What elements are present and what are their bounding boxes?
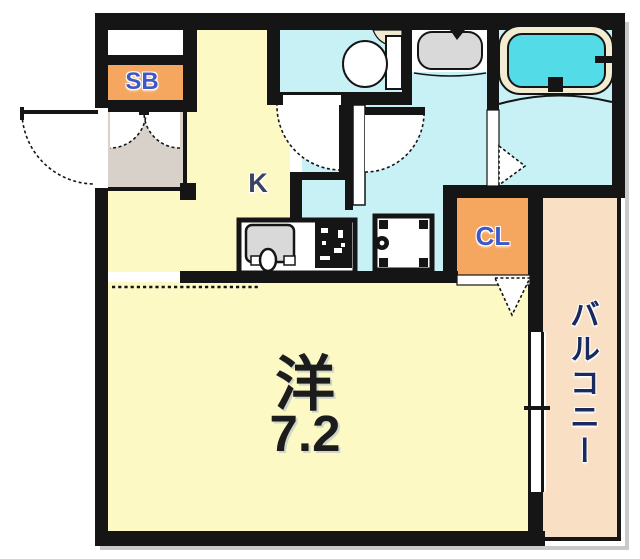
bathtub-faucet	[548, 77, 563, 92]
bathtub	[499, 26, 613, 104]
door-jamb-strip	[353, 105, 365, 205]
entrance-door	[20, 107, 98, 184]
entrance-door-arc	[22, 114, 95, 184]
shoe-box-label: SB	[104, 68, 180, 96]
wall-right-upper	[612, 13, 625, 197]
bathtub-grab-bar	[595, 56, 613, 63]
wall-room-balcony-lower	[528, 492, 543, 537]
kitchen-room-opening	[108, 272, 180, 282]
entrance-bottom-line	[107, 187, 183, 191]
toilet-bowl	[343, 41, 387, 87]
washing-machine-pan	[375, 216, 432, 270]
washroom-door-leaf	[365, 107, 425, 115]
sink-faucet	[260, 249, 276, 271]
wall-entrance-kitchen	[183, 13, 197, 112]
stove	[315, 222, 352, 268]
bathroom-door-strip	[487, 110, 499, 186]
window-center-tick	[524, 406, 550, 410]
sink-wing-right	[284, 256, 295, 265]
closet-label: CL	[455, 221, 531, 252]
toilet-tank	[386, 36, 402, 89]
entrance-opening	[95, 108, 108, 188]
washbasin-bowl	[418, 32, 482, 69]
entrance-door-leaf	[20, 110, 98, 114]
entrance-edge-line	[183, 112, 187, 190]
wall-bottom	[95, 531, 545, 546]
balcony-label: バルコニー	[561, 294, 603, 474]
kitchen-counter	[239, 220, 355, 273]
wall-kitchen-toilet	[267, 13, 280, 105]
entrance-recess	[108, 30, 183, 55]
wall-toilet-washbasin	[402, 13, 412, 95]
main-room-size-label: 7.2	[225, 404, 385, 463]
wall-washroom-nib	[300, 172, 347, 180]
kitchen-label: K	[230, 168, 286, 199]
floor-plan-drawing	[0, 0, 640, 559]
wall-left-lower	[95, 188, 108, 546]
floor-plan: SB K CL 洋 7.2 バルコニー	[0, 0, 640, 559]
wall-washroom-bathroom	[487, 13, 499, 110]
wall-shoebox-top	[107, 55, 183, 65]
toilet-door-opening	[283, 95, 341, 105]
toilet-door-leaf	[339, 105, 348, 172]
wall-entrance-corner	[180, 183, 196, 200]
shoe-box-door-stop	[139, 103, 149, 115]
